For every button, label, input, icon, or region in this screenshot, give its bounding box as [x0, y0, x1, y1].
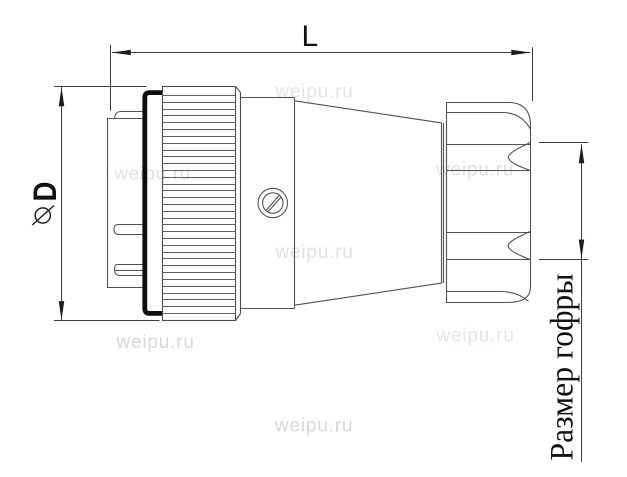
svg-text:L: L	[302, 20, 319, 53]
svg-text:weipu.ru: weipu.ru	[274, 416, 353, 437]
svg-text:weipu.ru: weipu.ru	[116, 332, 195, 353]
svg-text:D: D	[28, 182, 64, 202]
svg-text:weipu.ru: weipu.ru	[275, 242, 354, 263]
svg-text:Размер гофры: Размер гофры	[545, 274, 581, 461]
svg-text:weipu.ru: weipu.ru	[274, 81, 353, 102]
svg-text:weipu.ru: weipu.ru	[114, 163, 191, 184]
svg-text:weipu.ru: weipu.ru	[436, 326, 515, 347]
